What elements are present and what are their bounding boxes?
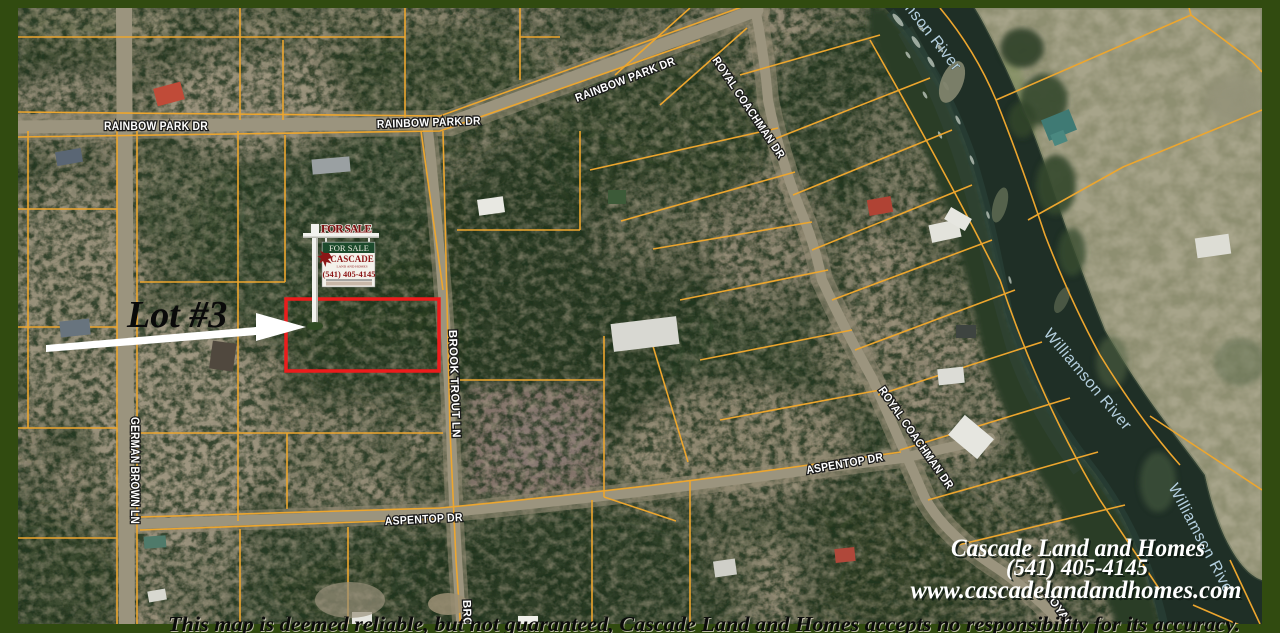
- svg-text:LAND AND HOMES: LAND AND HOMES: [336, 265, 367, 269]
- svg-text:This map is deemed reliable, b: This map is deemed reliable, but not gua…: [168, 612, 1240, 633]
- svg-text:GERMAN BROWN LN: GERMAN BROWN LN: [128, 417, 140, 524]
- svg-text:www.cascadelandandhomes.com: www.cascadelandandhomes.com: [911, 577, 1242, 604]
- svg-text:FOR SALE: FOR SALE: [329, 243, 369, 253]
- svg-text:Lot #3: Lot #3: [126, 294, 227, 336]
- svg-text:FOR SALE: FOR SALE: [321, 224, 372, 236]
- svg-text:(541) 405-4145: (541) 405-4145: [322, 269, 375, 279]
- svg-text:RAINBOW PARK DR: RAINBOW PARK DR: [104, 121, 208, 133]
- svg-text:CASCADE: CASCADE: [330, 254, 374, 264]
